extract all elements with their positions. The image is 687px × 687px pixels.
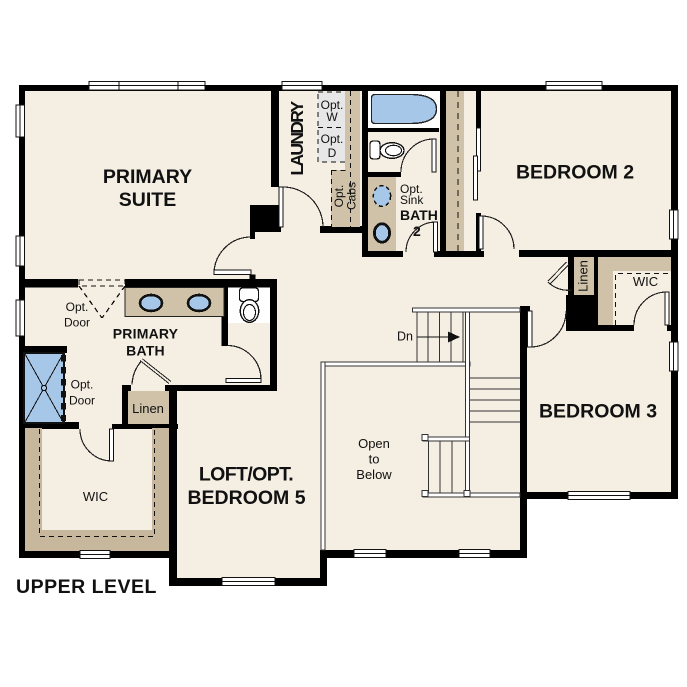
svg-text:to: to [369,452,380,467]
svg-text:BATH: BATH [400,207,438,223]
svg-text:BATH: BATH [126,343,165,359]
svg-text:BEDROOM 5: BEDROOM 5 [187,487,305,509]
svg-text:Linen: Linen [576,260,591,292]
svg-text:Open: Open [358,436,390,451]
svg-text:PRIMARY: PRIMARY [103,166,192,188]
svg-text:Below: Below [356,467,392,482]
svg-text:W: W [326,110,338,124]
svg-text:LAUNDRY: LAUNDRY [287,100,307,175]
svg-text:PRIMARY: PRIMARY [113,326,179,342]
svg-text:Opt.: Opt. [321,132,344,146]
svg-text:Sink: Sink [400,193,424,207]
svg-text:Cabs: Cabs [345,182,359,210]
svg-text:Door: Door [69,394,95,408]
svg-text:SUITE: SUITE [119,189,176,211]
svg-text:Linen: Linen [132,401,164,416]
svg-text:LOFT/OPT.: LOFT/OPT. [199,464,293,486]
svg-text:BEDROOM 2: BEDROOM 2 [516,162,634,184]
svg-text:Dn: Dn [397,330,413,344]
svg-text:UPPER LEVEL: UPPER LEVEL [16,576,157,598]
svg-text:Door: Door [64,316,90,330]
svg-text:D: D [328,146,337,160]
svg-text:BEDROOM 3: BEDROOM 3 [539,401,657,423]
svg-text:Opt.: Opt. [71,378,94,392]
svg-text:Opt.: Opt. [66,300,89,314]
svg-text:WIC: WIC [633,274,658,289]
svg-text:WIC: WIC [83,489,108,504]
